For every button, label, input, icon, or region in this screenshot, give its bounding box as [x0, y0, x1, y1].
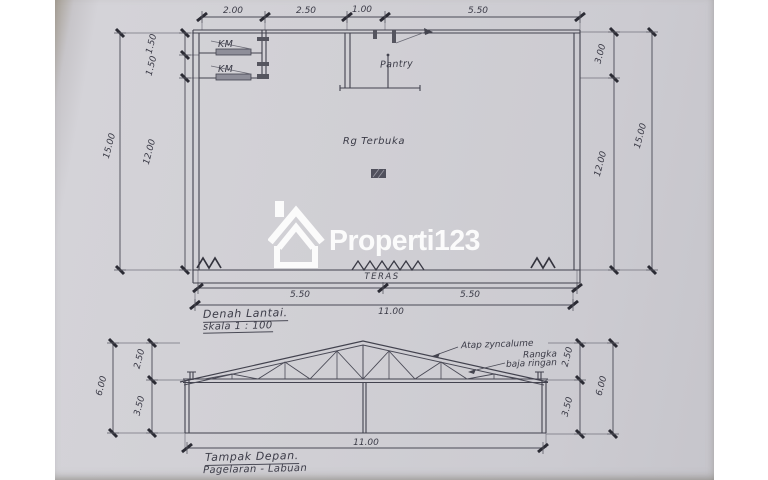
- room-label-terrace: TERAS: [364, 272, 399, 282]
- watermark: Properti123: [268, 198, 483, 268]
- dim-top-2: 2.50: [296, 6, 316, 16]
- house-icon: [268, 198, 326, 268]
- dim-bottom-1: 5.50: [290, 290, 310, 300]
- elev-dim-bottom: 11.00: [353, 438, 379, 448]
- room-label-open-space: Rg Terbuka: [343, 136, 405, 147]
- dim-top-3: 1.00: [352, 5, 372, 15]
- dim-top-4: 5.50: [468, 6, 488, 16]
- roof-annotation-line-3: baja ringan: [506, 358, 557, 370]
- dim-bottom-total: 11.00: [378, 307, 404, 317]
- brand-text: Properti123: [329, 225, 480, 258]
- room-label-km-2: KM: [218, 64, 233, 75]
- dim-top-1: 2.00: [223, 6, 243, 16]
- floor-plan-scale: skala 1 : 100: [203, 320, 273, 333]
- room-label-pantry: Pantry: [380, 58, 414, 70]
- blueprint-photo: 2.00 2.50 1.00 5.50 KM KM Pantry Rg Terb…: [0, 0, 768, 480]
- elevation-subtitle: Pagelaran - Labuan: [203, 463, 307, 476]
- dim-bottom-2: 5.50: [460, 290, 480, 300]
- room-label-km-1: KM: [218, 39, 233, 50]
